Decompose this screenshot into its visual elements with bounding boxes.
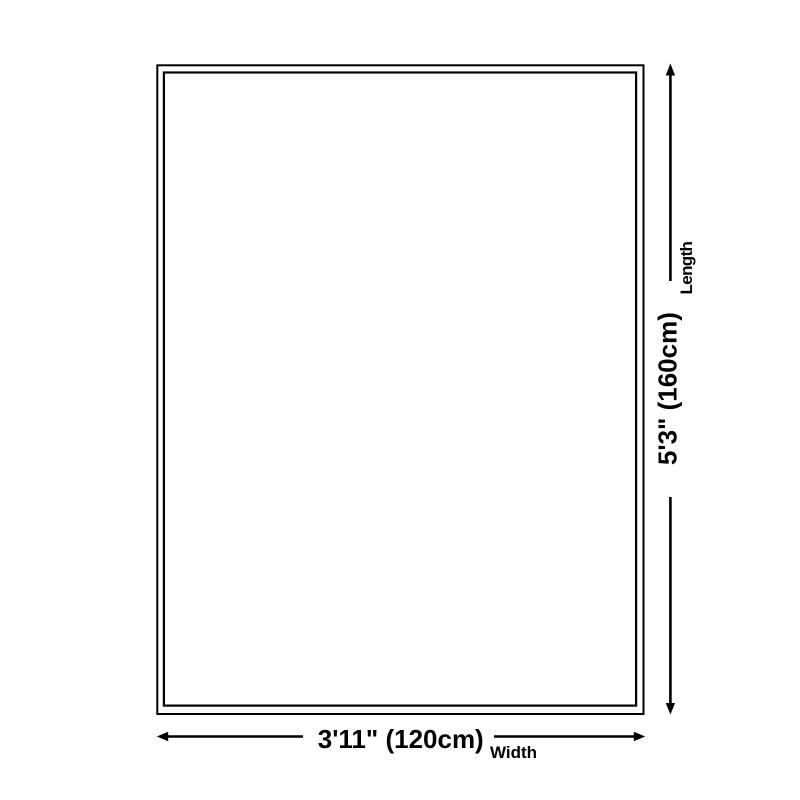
svg-text:3'11" (120cm): 3'11" (120cm) xyxy=(318,724,484,754)
svg-text:Length: Length xyxy=(677,241,696,294)
svg-text:Width: Width xyxy=(490,743,537,762)
svg-text:5'3" (160cm): 5'3" (160cm) xyxy=(653,312,683,465)
